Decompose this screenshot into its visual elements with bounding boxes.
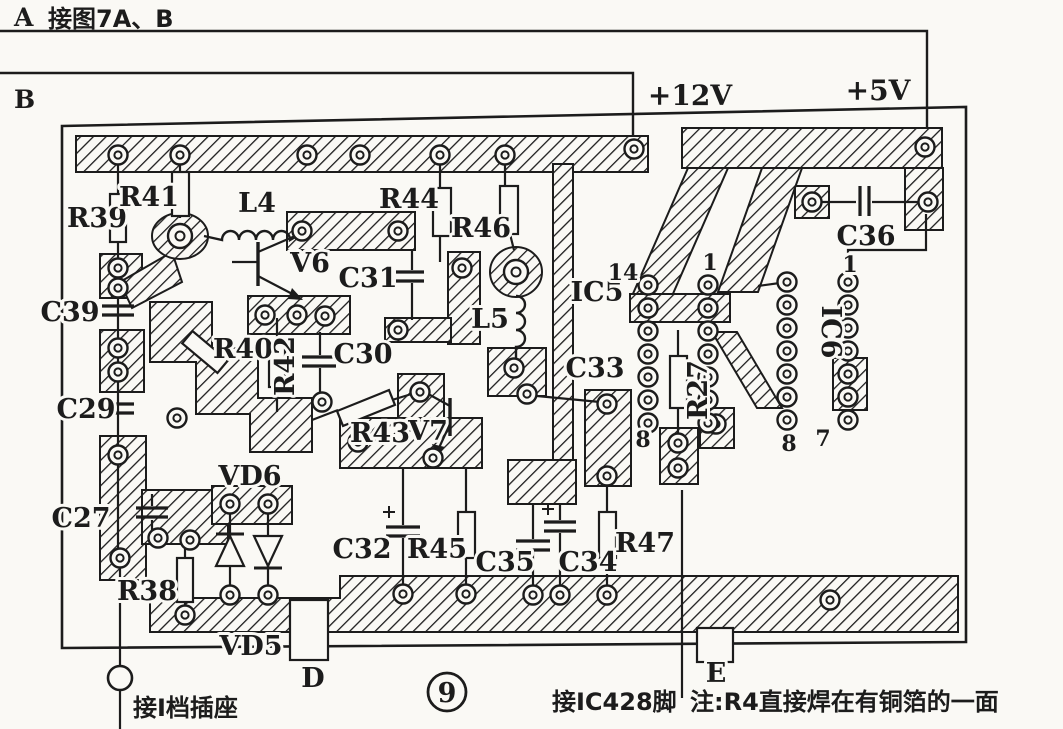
c34-symbol bbox=[544, 522, 576, 531]
label-ic6: IC6 bbox=[815, 306, 846, 359]
r38-body bbox=[177, 558, 193, 602]
label-r41: R41 bbox=[119, 182, 179, 213]
rail-5v-label: +5V bbox=[846, 74, 912, 107]
copper-c35-block bbox=[508, 460, 576, 504]
label-c30: C30 bbox=[333, 339, 392, 370]
wire-a-label: A bbox=[13, 3, 34, 32]
label-c34: C34 bbox=[558, 547, 617, 578]
note-socket: 接I档插座 bbox=[133, 694, 238, 722]
label-r44: R44 bbox=[379, 184, 439, 215]
label-r42: R42 bbox=[270, 336, 301, 396]
v6-emitter-arrow bbox=[288, 288, 303, 300]
c30-symbol bbox=[302, 357, 336, 366]
label-v6: V6 bbox=[289, 248, 330, 279]
label-point-e: E bbox=[706, 658, 727, 689]
label-point-d: D bbox=[301, 663, 324, 694]
test-point-d-box bbox=[290, 600, 328, 660]
label-c33: C33 bbox=[565, 353, 624, 384]
label-ic6-pin1: 1 bbox=[842, 252, 857, 278]
label-vd5: VD5 bbox=[218, 631, 282, 662]
pcb-layout-figure: A 接图7A、B B +12V +5V R39 R41 L4 V6 C31 R4… bbox=[0, 0, 1063, 729]
wire-a-note: 接图7A、B bbox=[48, 5, 174, 33]
figure-number: 9 bbox=[438, 678, 457, 709]
test-point-e-box bbox=[697, 628, 733, 662]
copper-mid-vertical-trace bbox=[553, 164, 573, 490]
label-vd6: VD6 bbox=[217, 461, 281, 492]
label-r45: R45 bbox=[407, 534, 467, 565]
label-r40: R40 bbox=[213, 334, 273, 365]
label-c35: C35 bbox=[475, 547, 534, 578]
label-ic6-pin7: 7 bbox=[815, 426, 830, 452]
label-l5: L5 bbox=[471, 304, 509, 335]
label-v7: V7 bbox=[407, 416, 448, 447]
label-c36: C36 bbox=[836, 221, 895, 252]
label-c27: C27 bbox=[51, 503, 110, 534]
label-r27: R27 bbox=[683, 360, 714, 420]
label-ic5-pin14: 14 bbox=[608, 260, 639, 286]
label-ic6-pin8: 8 bbox=[781, 431, 796, 457]
c32-polarity-plus bbox=[383, 506, 395, 518]
rail-12v-label: +12V bbox=[648, 79, 733, 112]
c36-symbol bbox=[860, 186, 869, 216]
label-c31: C31 bbox=[338, 263, 397, 294]
copper-ic5-diagonal bbox=[712, 332, 782, 408]
c31-symbol bbox=[396, 272, 424, 281]
diode-down-symbol bbox=[254, 536, 282, 566]
label-ic5-pin1: 1 bbox=[702, 250, 717, 276]
copper-top-right-strip bbox=[682, 128, 942, 168]
label-c29: C29 bbox=[56, 394, 115, 425]
label-ic5-pin8: 8 bbox=[635, 427, 650, 453]
label-r47: R47 bbox=[615, 528, 675, 559]
label-c39: C39 bbox=[40, 297, 99, 328]
label-r38: R38 bbox=[117, 576, 177, 607]
label-l4: L4 bbox=[238, 188, 276, 219]
label-r46: R46 bbox=[451, 213, 511, 244]
label-r43: R43 bbox=[350, 418, 410, 449]
note-solder: 注:R4直接焊在有铜箔的一面 bbox=[690, 688, 999, 716]
socket-connector-circle bbox=[108, 666, 132, 690]
note-ic428: 接IC428脚 bbox=[552, 688, 677, 716]
pcb-diagram-canvas: A 接图7A、B B +12V +5V R39 R41 L4 V6 C31 R4… bbox=[0, 0, 1063, 729]
label-c32: C32 bbox=[332, 534, 391, 565]
wire-b-label: B bbox=[14, 85, 35, 114]
